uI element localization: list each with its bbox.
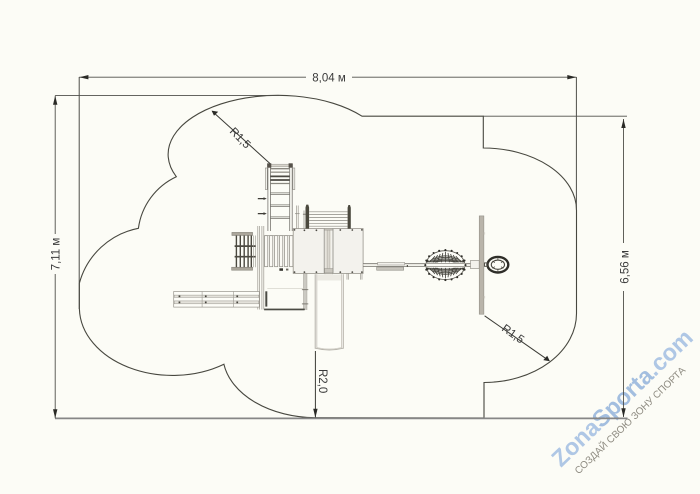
svg-text:7,11 м: 7,11 м — [50, 238, 62, 271]
svg-text:R2,0: R2,0 — [316, 369, 328, 393]
svg-text:8,04 м: 8,04 м — [312, 73, 346, 85]
svg-text:6,56 м: 6,56 м — [619, 250, 631, 284]
